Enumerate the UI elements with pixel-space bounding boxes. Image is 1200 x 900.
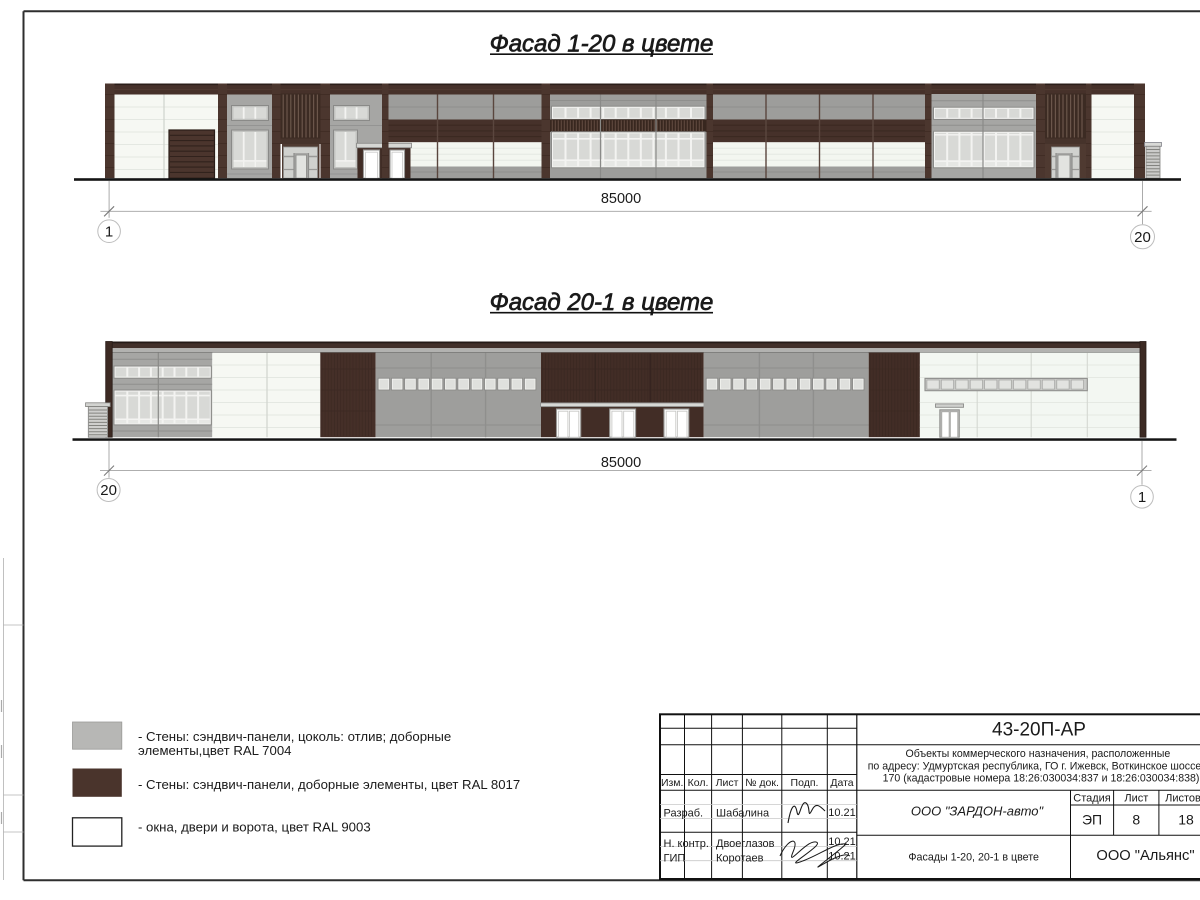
svg-text:1: 1 <box>1138 489 1146 506</box>
svg-text:ООО "ЗАРДОН-авто": ООО "ЗАРДОН-авто" <box>911 804 1045 819</box>
svg-text:170 (кадастровые номера 18:26:: 170 (кадастровые номера 18:26:030034:837… <box>883 772 1200 784</box>
svg-text:Лист: Лист <box>716 777 739 789</box>
svg-text:Кол.: Кол. <box>688 777 709 789</box>
svg-text:10.21: 10.21 <box>828 807 856 819</box>
svg-text:элементы,цвет RAL 7004: элементы,цвет RAL 7004 <box>138 743 292 758</box>
svg-text:Лист: Лист <box>1124 793 1148 805</box>
svg-text:8: 8 <box>1132 812 1140 828</box>
svg-text:Листов: Листов <box>1165 793 1200 805</box>
svg-text:ООО "Альянс": ООО "Альянс" <box>1096 848 1194 864</box>
svg-text:- окна, двери и ворота, цвет R: - окна, двери и ворота, цвет RAL 9003 <box>138 820 371 835</box>
svg-text:Двоеглазов: Двоеглазов <box>716 838 775 850</box>
svg-text:по адресу: Удмуртская республи: по адресу: Удмуртская республика, ГО г. … <box>868 760 1200 772</box>
svg-text:Фасады 1-20, 20-1 в цвете: Фасады 1-20, 20-1 в цвете <box>908 851 1039 863</box>
svg-text:Шабалина: Шабалина <box>716 808 770 820</box>
svg-text:Объекты коммерческого назначен: Объекты коммерческого назначения, распол… <box>906 748 1171 760</box>
svg-text:85000: 85000 <box>601 455 641 471</box>
svg-text:Н. контр.: Н. контр. <box>664 838 709 850</box>
svg-text:18: 18 <box>1178 812 1194 828</box>
svg-text:№ док.: № док. <box>745 777 779 789</box>
svg-text:Дата: Дата <box>830 777 853 789</box>
svg-text:Подп.: Подп. <box>791 777 819 789</box>
svg-text:ГИП: ГИП <box>664 853 686 865</box>
svg-text:10.21: 10.21 <box>828 851 856 863</box>
svg-text:Изм.: Изм. <box>661 777 684 789</box>
svg-text:ЭП: ЭП <box>1082 812 1102 828</box>
svg-text:Коротаев: Коротаев <box>716 853 764 865</box>
svg-text:20: 20 <box>1134 229 1151 246</box>
svg-text:- Стены: сэндвич-панели, цокол: - Стены: сэндвич-панели, цоколь: отлив; … <box>138 729 451 744</box>
svg-text:85000: 85000 <box>601 191 641 207</box>
svg-text:1: 1 <box>105 223 113 240</box>
svg-text:- Стены: сэндвич-панели, добор: - Стены: сэндвич-панели, доборные элемен… <box>138 777 520 792</box>
svg-text:Разраб.: Разраб. <box>664 808 704 820</box>
svg-text:Стадия: Стадия <box>1073 793 1111 805</box>
svg-text:10.21: 10.21 <box>828 836 856 848</box>
svg-text:20: 20 <box>100 482 117 499</box>
svg-text:43-20П-АР: 43-20П-АР <box>992 720 1086 741</box>
